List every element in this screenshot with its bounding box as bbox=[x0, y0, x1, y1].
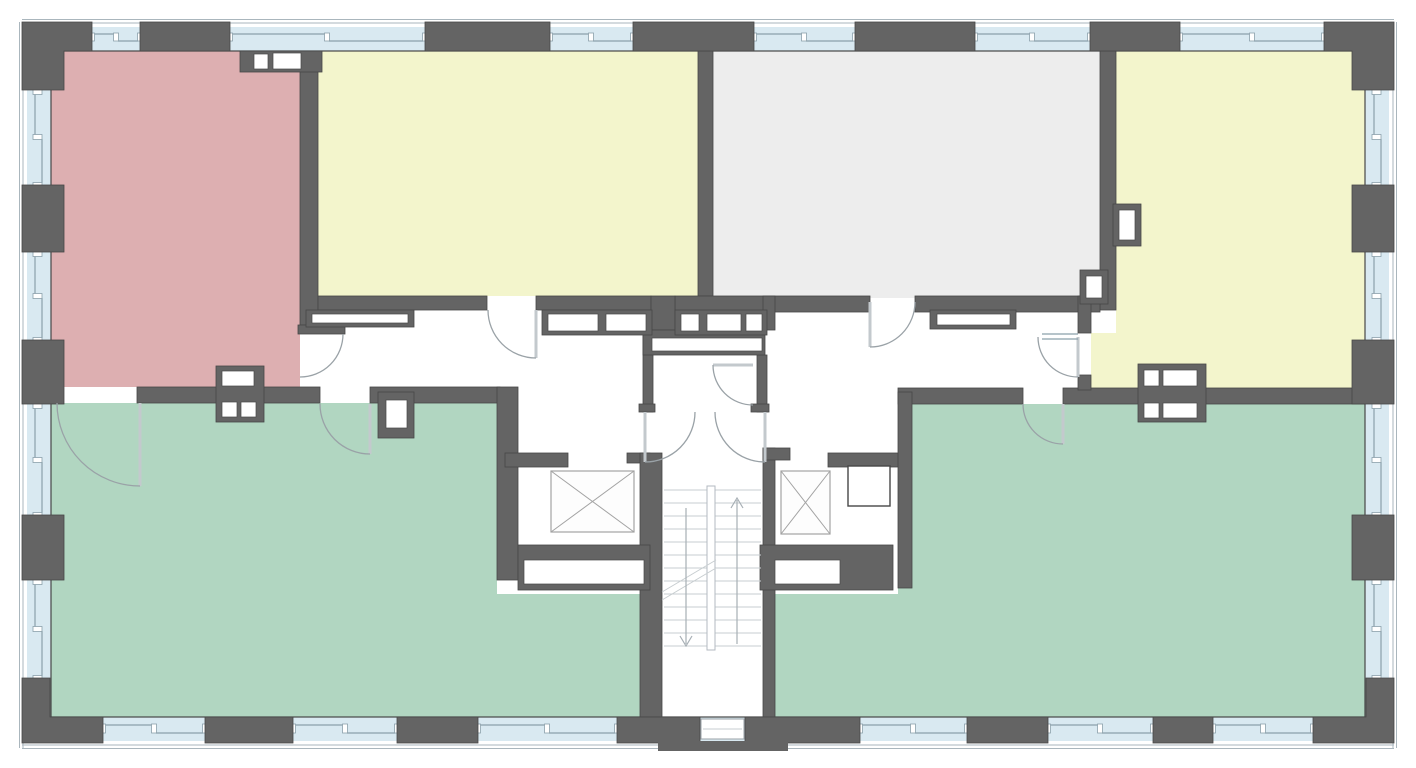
door-arc bbox=[870, 302, 915, 347]
elevator-right bbox=[781, 466, 890, 534]
wall-red-right bbox=[300, 51, 318, 325]
room-top-center-left bbox=[318, 51, 698, 296]
wall-core-left bbox=[497, 387, 518, 580]
wall-hall-left bbox=[318, 296, 487, 310]
door-arc bbox=[488, 310, 536, 358]
floor-plan bbox=[0, 0, 1416, 768]
elevator-left bbox=[551, 471, 634, 532]
wall-core-right bbox=[898, 392, 912, 588]
door-arc bbox=[300, 334, 343, 377]
room-top-center-right bbox=[713, 51, 1100, 298]
wall-yellow-gray-divider bbox=[698, 51, 713, 296]
door-arc bbox=[715, 412, 765, 462]
stair-stringer bbox=[707, 486, 715, 650]
room-top-left bbox=[51, 51, 300, 387]
stairs bbox=[662, 486, 761, 739]
stair-up-arrow bbox=[731, 498, 743, 644]
floor-plan-canvas bbox=[0, 0, 1416, 768]
door-arc bbox=[713, 365, 753, 405]
shaft-box bbox=[848, 466, 890, 506]
door-arc bbox=[1038, 337, 1078, 377]
